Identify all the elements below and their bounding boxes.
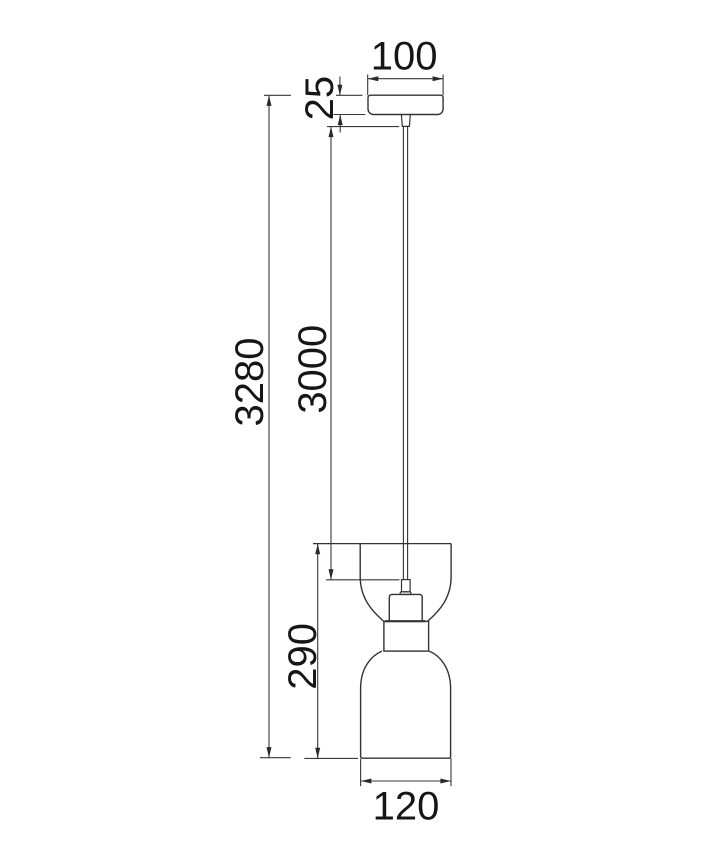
svg-text:290: 290 xyxy=(281,623,325,690)
svg-text:25: 25 xyxy=(298,76,342,121)
svg-text:3280: 3280 xyxy=(228,338,272,427)
svg-text:100: 100 xyxy=(371,35,438,79)
svg-text:3000: 3000 xyxy=(291,325,335,414)
svg-text:120: 120 xyxy=(373,784,440,828)
